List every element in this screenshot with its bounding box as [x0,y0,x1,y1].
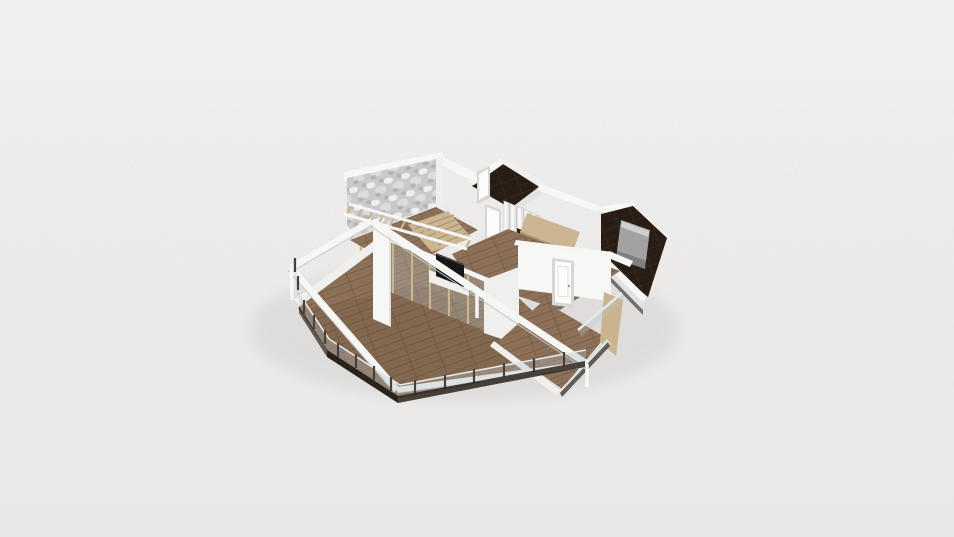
wall-pillar [373,227,391,327]
pergola-post-west [291,268,292,300]
garden-room-door [552,258,574,308]
floorplan-3d-viewport[interactable] [0,0,954,537]
bathroom-door [477,166,490,204]
door-knob [568,285,570,287]
back-wall-edge [436,157,443,206]
